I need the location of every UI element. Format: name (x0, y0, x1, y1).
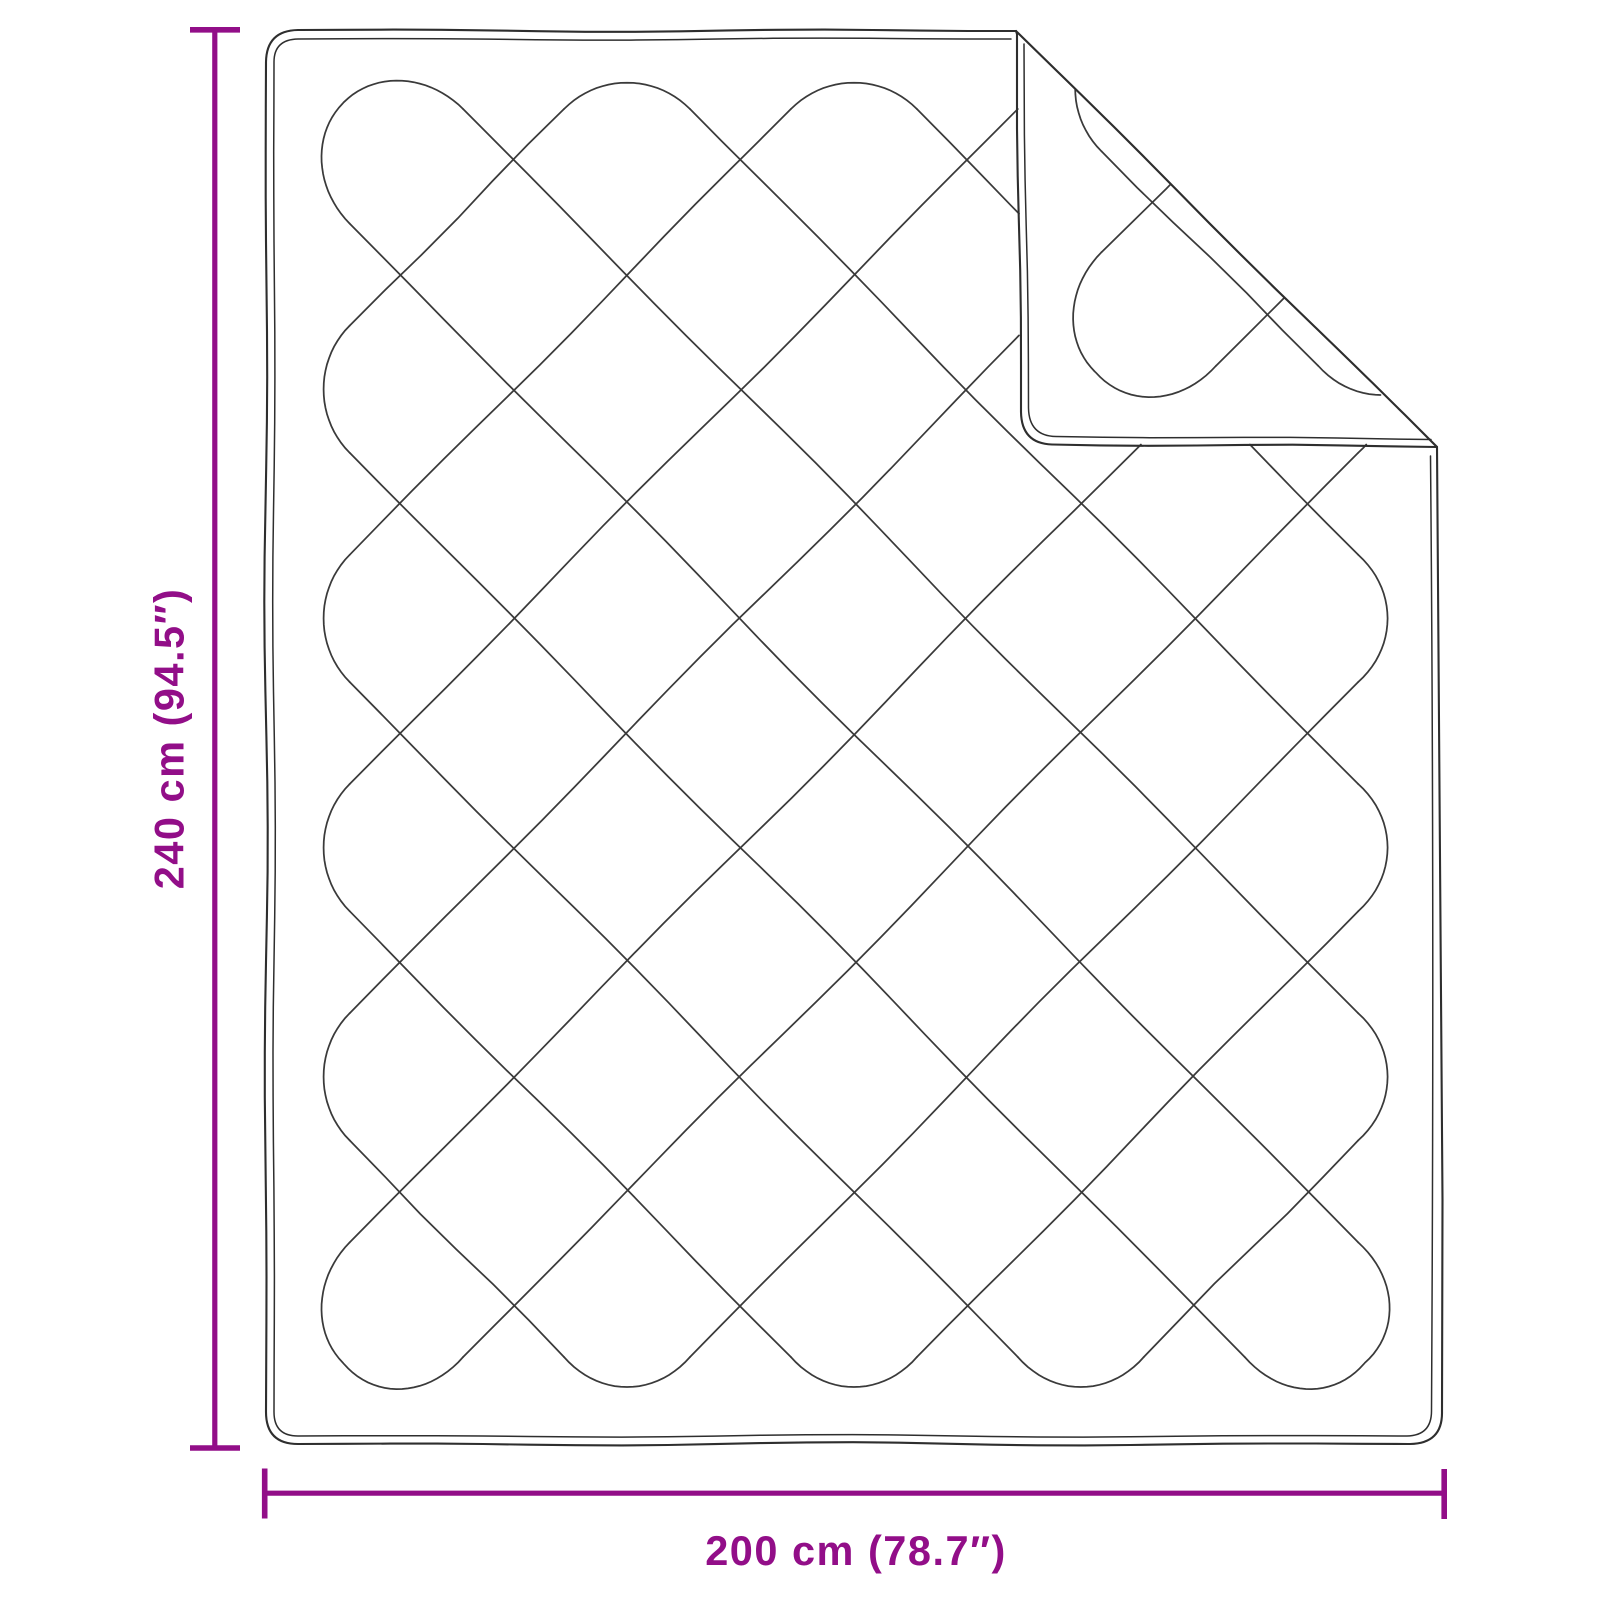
svg-text:200 cm (78.7″): 200 cm (78.7″) (705, 1527, 1007, 1574)
svg-text:240 cm (94.5″): 240 cm (94.5″) (146, 588, 193, 890)
